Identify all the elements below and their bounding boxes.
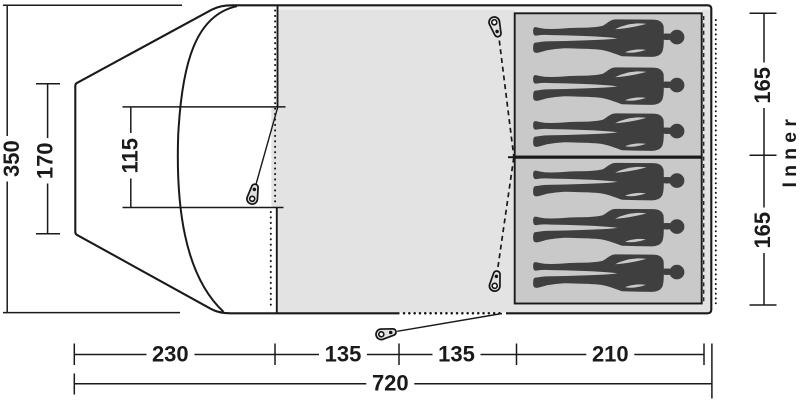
svg-text:350: 350 [0, 140, 24, 177]
svg-text:720: 720 [372, 371, 409, 396]
svg-text:115: 115 [118, 138, 143, 174]
svg-text:135: 135 [438, 342, 475, 367]
svg-text:210: 210 [592, 342, 629, 367]
svg-text:170: 170 [33, 142, 58, 179]
svg-text:165: 165 [750, 67, 775, 104]
svg-text:230: 230 [152, 342, 189, 367]
svg-text:Inner: Inner [779, 114, 800, 188]
svg-text:165: 165 [750, 212, 775, 249]
svg-text:135: 135 [325, 342, 362, 367]
